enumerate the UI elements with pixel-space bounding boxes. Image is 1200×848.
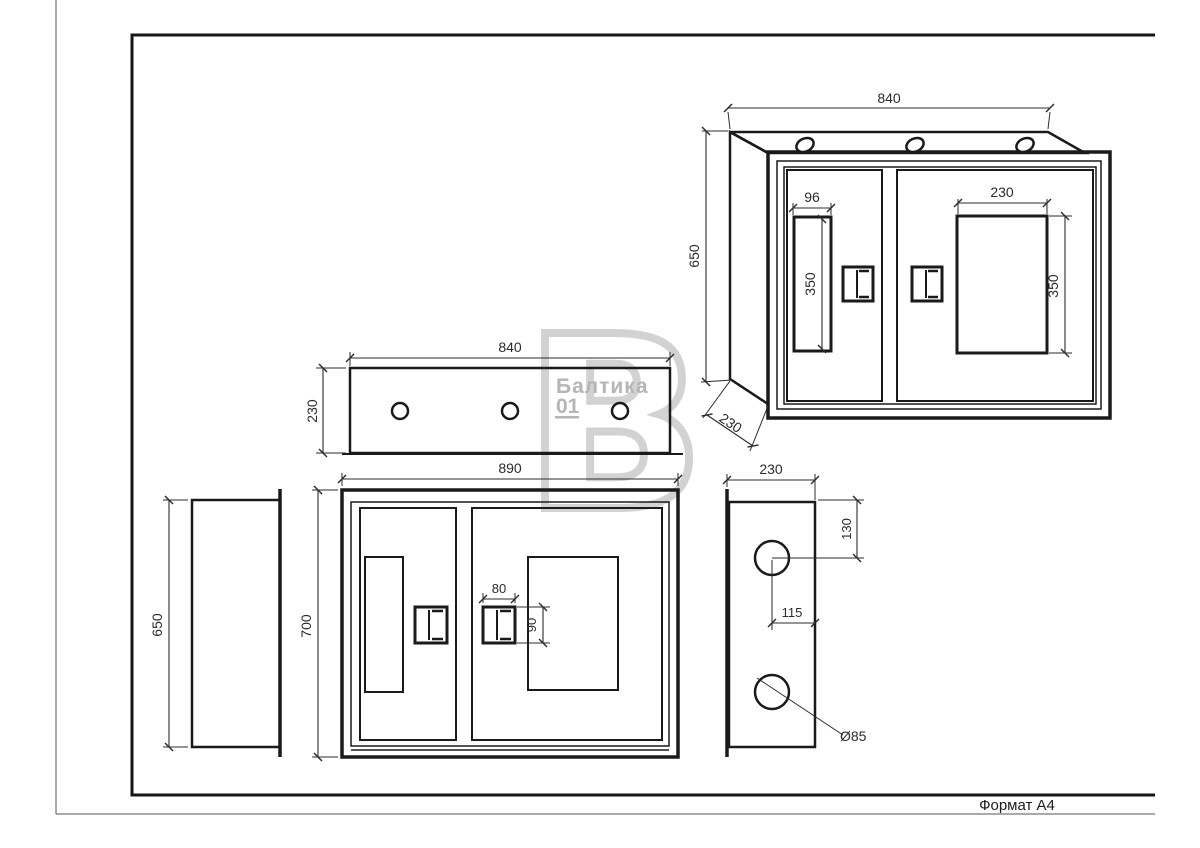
iso-left-handle-icon xyxy=(843,267,873,301)
dim-iso-depth: 230 xyxy=(703,381,768,451)
svg-text:700: 700 xyxy=(298,614,314,638)
svg-text:650: 650 xyxy=(686,244,702,268)
svg-text:350: 350 xyxy=(1045,274,1061,298)
dim-top-depth: 230 xyxy=(304,368,346,453)
dim-right-side-hole-diameter: Ø85 xyxy=(757,678,867,744)
technical-drawing: В Балтика 01 xyxy=(0,0,1200,848)
dim-front-height: 700 xyxy=(298,490,338,757)
view-left-side: 650 xyxy=(149,489,280,757)
svg-text:115: 115 xyxy=(782,605,803,620)
dim-left-side-height: 650 xyxy=(149,500,188,747)
svg-text:230: 230 xyxy=(304,399,320,423)
dim-iso-right-window-width: 230 xyxy=(958,184,1047,214)
dim-right-side-width: 230 xyxy=(727,461,815,500)
dim-iso-right-window-height: 350 xyxy=(1045,216,1072,353)
dim-iso-width: 840 xyxy=(728,90,1050,129)
dim-iso-left-window-width: 96 xyxy=(793,189,831,215)
top-view-hole xyxy=(502,403,518,419)
front-right-door-window xyxy=(528,557,618,690)
drawing-sheet: В Балтика 01 xyxy=(0,0,1200,848)
front-right-handle-icon xyxy=(483,607,515,643)
top-view-hole xyxy=(392,403,408,419)
svg-text:96: 96 xyxy=(804,189,820,205)
svg-text:230: 230 xyxy=(759,461,783,477)
dim-front-handle-height: 90 xyxy=(517,607,550,643)
left-side-body xyxy=(192,500,280,747)
svg-text:840: 840 xyxy=(877,90,901,106)
svg-text:350: 350 xyxy=(802,272,818,296)
svg-text:230: 230 xyxy=(717,410,745,436)
svg-text:130: 130 xyxy=(839,518,854,540)
view-isometric: 840 650 230 96 350 xyxy=(686,90,1110,451)
watermark-underline xyxy=(555,416,579,419)
view-right-side: 230 130 115 Ø85 xyxy=(727,461,867,757)
svg-text:90: 90 xyxy=(524,618,539,632)
iso-right-handle-icon xyxy=(912,267,942,301)
dim-front-handle-width: 80 xyxy=(483,581,515,603)
svg-text:80: 80 xyxy=(492,581,506,596)
iso-right-door-window xyxy=(957,216,1047,353)
iso-left-face xyxy=(730,132,768,404)
svg-text:890: 890 xyxy=(498,460,522,476)
svg-text:840: 840 xyxy=(498,339,522,355)
svg-text:Ø85: Ø85 xyxy=(840,728,867,744)
front-left-door-window xyxy=(365,557,403,692)
svg-text:230: 230 xyxy=(990,184,1014,200)
format-label: Формат A4 xyxy=(979,797,1055,814)
watermark-number: 01 xyxy=(556,395,580,418)
svg-text:650: 650 xyxy=(149,613,165,637)
front-left-door xyxy=(360,508,456,740)
dim-iso-left-window-height: 350 xyxy=(802,219,822,349)
dim-right-side-hole-offset-side: 115 xyxy=(772,560,815,630)
front-left-handle-icon xyxy=(415,607,447,643)
